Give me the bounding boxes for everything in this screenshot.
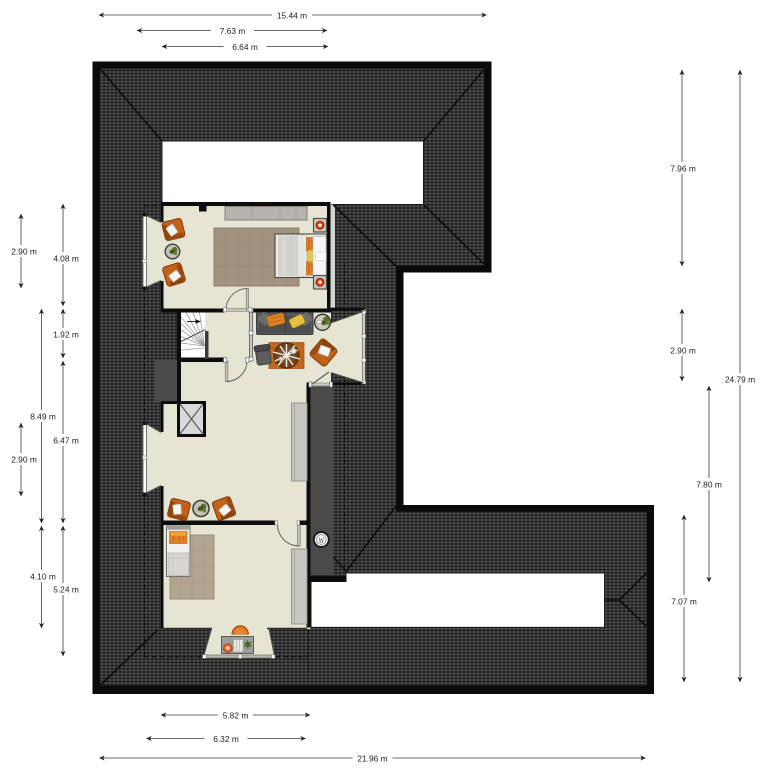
svg-text:6.47 m: 6.47 m: [53, 436, 79, 446]
svg-text:8.49 m: 8.49 m: [30, 412, 56, 422]
svg-text:4.10 m: 4.10 m: [30, 572, 56, 582]
svg-text:7.80 m: 7.80 m: [696, 480, 722, 490]
svg-text:21.96 m: 21.96 m: [357, 754, 387, 764]
svg-text:6.64 m: 6.64 m: [232, 42, 258, 52]
svg-text:24.79 m: 24.79 m: [725, 375, 755, 385]
svg-text:7.63 m: 7.63 m: [220, 26, 246, 36]
svg-text:5.82 m: 5.82 m: [223, 711, 249, 721]
svg-text:1.92 m: 1.92 m: [53, 330, 79, 340]
svg-text:7.07 m: 7.07 m: [671, 597, 697, 607]
svg-text:7.96 m: 7.96 m: [670, 164, 696, 174]
svg-text:4.08 m: 4.08 m: [53, 254, 79, 264]
svg-text:2.90 m: 2.90 m: [670, 346, 696, 356]
svg-text:2.90 m: 2.90 m: [11, 455, 37, 465]
svg-text:6.32 m: 6.32 m: [213, 734, 239, 744]
svg-text:15.44 m: 15.44 m: [277, 11, 307, 21]
svg-text:5.24 m: 5.24 m: [53, 585, 79, 595]
svg-text:2.90 m: 2.90 m: [11, 247, 37, 257]
